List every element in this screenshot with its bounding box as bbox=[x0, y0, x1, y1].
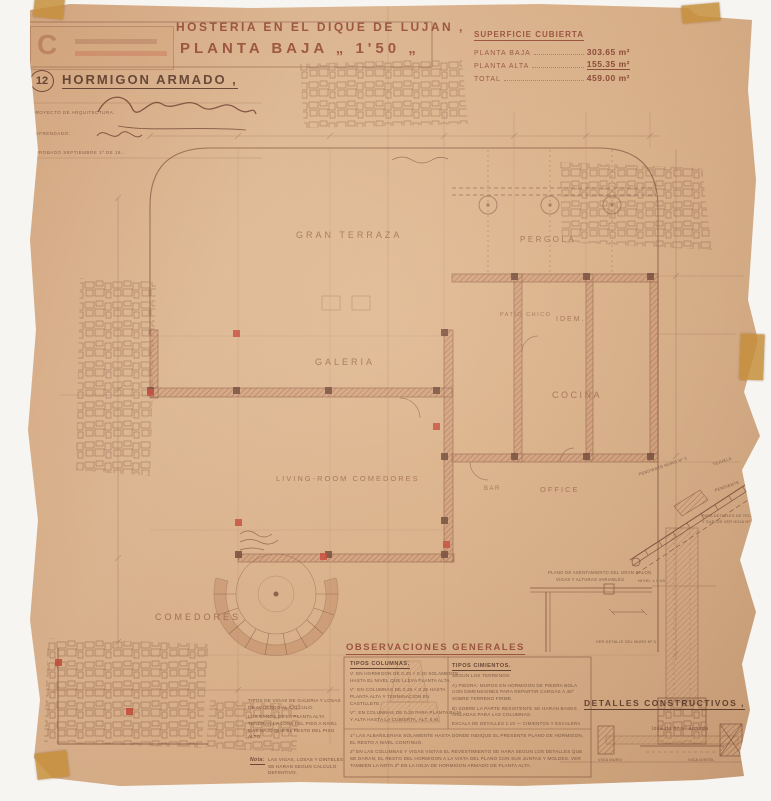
note-line: PARA DETALLES DE TECHOS Y SUELOS VER HOJ… bbox=[702, 514, 760, 525]
note-line: V': EN COLUMNAS DE 0.25 × 0.25 HASTA PLA… bbox=[350, 687, 462, 707]
row-label: PLANTA BAJA bbox=[474, 50, 531, 57]
room-label-cocina: COCINA bbox=[552, 390, 602, 400]
foundations-types-heading: TIPOS CIMIENTOS. bbox=[452, 663, 511, 671]
note-line: TIPOS DE VIGAS DE GALERIA Y LOSAS DE ACU… bbox=[248, 698, 342, 711]
columns-types-notes: V: EN HORMIGON DE 0.20 × 0.20 SOLAMENTE … bbox=[350, 671, 462, 727]
note-line: V: EN HORMIGON DE 0.20 × 0.20 SOLAMENTE … bbox=[350, 671, 462, 684]
architect-stamp: C bbox=[30, 26, 174, 70]
row-label: PLANTA ALTA bbox=[474, 63, 529, 70]
beam-right-label: VIGA DINTEL bbox=[688, 758, 715, 762]
room-label-comedores: COMEDORES bbox=[155, 612, 241, 622]
details-heading: DETALLES CONSTRUCTIVOS , bbox=[584, 698, 745, 710]
numbered-notes: 1º LAS ALBAÑILERIAS SOLAMENTE HASTA DOND… bbox=[350, 733, 586, 772]
signature-row2-label: REFRENDADO: bbox=[32, 131, 70, 136]
tape-piece bbox=[33, 0, 65, 20]
nota-label: Nota: bbox=[250, 757, 265, 765]
room-label-patio-chico: PATIO CHICO bbox=[500, 312, 551, 318]
sheet-number-badge: 12 bbox=[30, 70, 54, 92]
tape-piece bbox=[681, 2, 720, 23]
nota-text: LAS VIGAS, LOSAS Y DINTELES SE HARAN SEG… bbox=[268, 757, 344, 780]
scale-note: ESCALA DE DETALLES 1:10 — CIMIENTOS Y ES… bbox=[452, 721, 581, 726]
note-line: V'': EN COLUMNAS DE 0.30 PARA PLANTA BAJ… bbox=[350, 710, 462, 723]
beam-caption: losa de hº aº armada bbox=[652, 726, 708, 732]
room-label-office: OFFICE bbox=[540, 485, 580, 494]
signature-row1-label: PROYECTO DE ARQUITECTURA: bbox=[32, 110, 115, 115]
note-line: 1º LAS ALBAÑILERIAS SOLAMENTE HASTA DOND… bbox=[350, 733, 586, 746]
row-value: 459.00 m² bbox=[587, 73, 630, 83]
drawing-title-line1: HOSTERIA EN EL DIQUE DE LUJAN , bbox=[176, 20, 465, 34]
scanned-drawing-sheet: C HOSTERIA EN EL DIQUE DE LUJAN , PLANTA… bbox=[0, 0, 771, 801]
columns-types-heading: TIPOS COLUMNAS. bbox=[350, 661, 410, 669]
room-label-galeria: GALERIA bbox=[315, 357, 375, 367]
stamp-text-line bbox=[75, 39, 157, 44]
note-line: 2º EN LAS COLUMNAS Y VIGAS VISTAS EL REV… bbox=[350, 749, 586, 769]
room-label-idem: IDEM. bbox=[556, 316, 585, 323]
stamp-monogram: C bbox=[37, 29, 57, 61]
row-value: 155.35 m² bbox=[587, 59, 630, 70]
area-table-row: TOTAL 459.00 m² bbox=[474, 70, 630, 83]
row-label: TOTAL bbox=[474, 76, 501, 83]
note-line: LAS VIGAS, LOSAS Y DINTELES SE HARAN SEG… bbox=[268, 757, 344, 777]
room-label-living: LIVING-ROOM COMEDORES bbox=[276, 474, 420, 483]
terrace-furniture bbox=[322, 296, 370, 310]
room-label-pergola: PERGOLA bbox=[520, 235, 576, 244]
stamp-text-line bbox=[75, 51, 167, 56]
area-table-row: PLANTA ALTA 155.35 m² bbox=[474, 57, 630, 70]
galeria-beam-notes: TIPOS DE VIGAS DE GALERIA Y LOSAS DE ACU… bbox=[248, 698, 342, 744]
settlement-caption-2: VIGAS Y ALTURAS VARIABLES bbox=[556, 577, 624, 582]
tape-piece bbox=[35, 750, 70, 780]
tape-piece bbox=[739, 334, 765, 381]
roof-level-label: NIVEL ± 0.00 bbox=[638, 578, 665, 583]
row-value: 303.65 m² bbox=[587, 47, 630, 57]
note-line: SEGUN LOS TERRENOS: bbox=[452, 673, 586, 680]
circular-staircase bbox=[214, 554, 338, 656]
observations-heading: OBSERVACIONES GENERALES bbox=[346, 642, 525, 655]
note-line: LOS BAÑOS DE LA PLANTA ALTA TENDRAN LA L… bbox=[248, 714, 342, 741]
roof-note: PARA DETALLES DE TECHOS Y SUELOS VER HOJ… bbox=[702, 514, 760, 528]
handwritten-annotations bbox=[240, 157, 448, 550]
paper-fold-crease bbox=[387, 0, 389, 801]
note-line: A) PIEDRA: MUROS EN HORMIGON DE PIEDRA B… bbox=[452, 683, 586, 703]
foundations-types-notes: SEGUN LOS TERRENOS: A) PIEDRA: MUROS EN … bbox=[452, 673, 586, 722]
room-label-bar: BAR bbox=[484, 486, 501, 492]
note-line: B) SOBRE LA PARTE RESISTENTE SE HARAN BA… bbox=[452, 706, 586, 719]
paper-sheet: C HOSTERIA EN EL DIQUE DE LUJAN , PLANTA… bbox=[0, 0, 771, 801]
sheet-number: 12 bbox=[36, 75, 48, 87]
settlement-small-note: VER DETALLE DEL MURO Nº 3 bbox=[596, 640, 666, 649]
material-heading: HORMIGON ARMADO , bbox=[62, 72, 238, 89]
beam-left-label: VIGA MURO bbox=[598, 758, 622, 762]
signature-row3-label: APROBADO SEPTIEMBRE 1º DE 19.. bbox=[32, 150, 124, 155]
settlement-caption-1: PLANO DE ASENTAMIENTO DEL GRAN SALON bbox=[548, 570, 651, 575]
area-table-row: PLANTA BAJA 303.65 m² bbox=[474, 44, 630, 57]
area-table-heading: SUPERFICIE CUBIERTA bbox=[474, 30, 584, 41]
area-table: PLANTA BAJA 303.65 m² PLANTA ALTA 155.35… bbox=[474, 44, 630, 83]
drawing-title-line2: PLANTA BAJA „ 1'50 „ bbox=[180, 40, 420, 57]
note-line: VER DETALLE DEL MURO Nº 3 bbox=[596, 640, 666, 646]
